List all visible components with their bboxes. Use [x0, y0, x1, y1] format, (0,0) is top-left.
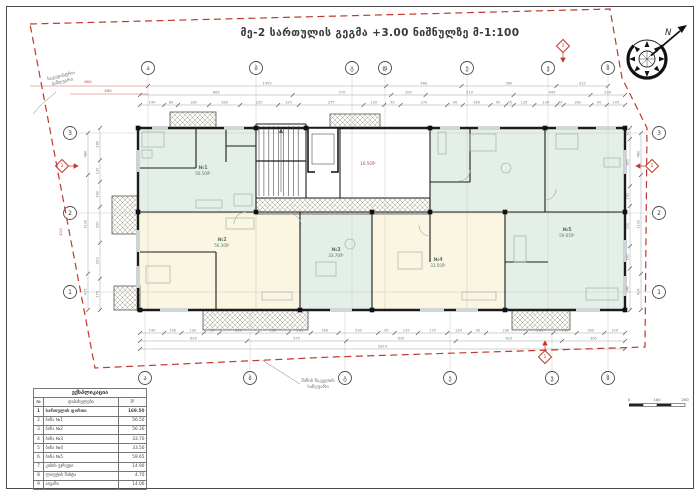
shaft-top-center	[330, 114, 380, 128]
dim-value: 90	[453, 101, 458, 105]
table-row: 1სართულის ფართი169.50	[34, 407, 147, 416]
balcony-left-upper	[112, 196, 138, 234]
column-marker	[136, 126, 141, 131]
grid-bubble-label: ა	[146, 65, 149, 72]
row-number: 7	[34, 462, 44, 471]
boundary-dim-value: 490	[104, 88, 112, 93]
row-area: 4.70	[119, 471, 147, 480]
dim-value: 130	[189, 329, 197, 333]
window-break	[136, 230, 140, 252]
table-row: 5ბინა №433.50	[34, 444, 147, 453]
dim-value: 120	[96, 167, 100, 175]
column-marker	[503, 308, 508, 313]
grid-bubble-label: ზ	[606, 65, 609, 72]
row-number: 5	[34, 444, 44, 453]
balcony-left-lower	[114, 286, 140, 310]
room-fill-apt3	[300, 212, 372, 310]
dim-value: 130	[296, 329, 304, 333]
grid-bubble-label: 3	[68, 130, 72, 137]
dim-value: 160	[321, 329, 329, 333]
dim-value: 45	[508, 101, 513, 105]
dim-value: 510	[466, 91, 474, 95]
dim-value: 120	[611, 329, 619, 333]
dim-value: 135	[403, 329, 410, 333]
section-arrow-head	[561, 58, 565, 62]
scale-seg-1	[629, 404, 643, 407]
grid-bubble-label: 1	[657, 289, 661, 296]
section-arrow-head	[74, 164, 78, 168]
boundary-dim-value: 410	[58, 228, 63, 236]
staircase	[256, 126, 306, 196]
grid-bubble-label: ზ	[606, 375, 609, 382]
window-break	[556, 126, 578, 130]
table-row: 9აივანი14.06	[34, 480, 147, 489]
dim-value: 1130	[637, 219, 641, 229]
dim-value: 180	[96, 140, 100, 148]
room-fill-apt1	[138, 128, 256, 212]
column-marker	[136, 210, 141, 215]
dim-value: 95	[390, 101, 395, 105]
drawing-sheet: აბგდევზაბგევზ321321 №156.50მ²№256.30მ²№3…	[0, 0, 700, 495]
row-number: 4	[34, 434, 44, 443]
row-name: ბინა №2	[44, 425, 119, 434]
column-marker	[503, 210, 508, 215]
row-name: ბინა №3	[44, 434, 119, 443]
balcony-bottom-right	[512, 310, 570, 330]
dim-value: 570	[339, 91, 347, 95]
window-break	[456, 308, 478, 312]
column-marker	[298, 308, 303, 313]
table-row: 2ბინა №156.50	[34, 416, 147, 425]
row-name: ბინა №1	[44, 416, 119, 425]
scale-seg-4	[671, 404, 685, 407]
window-break	[330, 308, 352, 312]
balcony-top-left	[170, 112, 216, 128]
scale-seg-2	[643, 404, 657, 407]
row-area: 14.90	[119, 462, 147, 471]
dim-value: 175	[96, 291, 100, 298]
table-title: ექსპლიკაცია	[34, 389, 147, 398]
dim-value: 200	[604, 91, 612, 95]
table-header-area: მ²	[119, 398, 147, 407]
section-marker: 2	[56, 160, 79, 173]
compass-tick	[659, 57, 665, 62]
dim-value: 160	[536, 329, 544, 333]
window-break	[160, 308, 188, 312]
row-name: კიბის უჯრედი	[44, 462, 119, 471]
dim-value: 460	[420, 82, 428, 86]
dim-value: 160	[626, 192, 630, 200]
table-row: 7კიბის უჯრედი14.90	[34, 462, 147, 471]
dim-value: 105	[613, 101, 620, 105]
dim-value: 180	[626, 253, 630, 261]
dim-value: 230	[502, 329, 510, 333]
column-marker	[304, 126, 309, 131]
dim-value: 160	[574, 101, 582, 105]
dim-value: 130	[542, 101, 550, 105]
dim-value: 415	[84, 288, 88, 295]
dim-value: 365	[590, 337, 597, 341]
dim-value: 170	[429, 329, 437, 333]
explication-block: ექსპლიკაცია № დასახელება მ² 1სართულის ფა…	[33, 388, 146, 490]
parcel-note-line2: საზღვარი	[283, 385, 353, 391]
compass-tick	[629, 57, 635, 62]
window-break	[576, 308, 600, 312]
room-area: 16.50მ²	[360, 161, 376, 166]
row-name: ბინა №5	[44, 453, 119, 462]
grid-bubble-label: 3	[657, 130, 661, 137]
dim-value: 180	[221, 101, 229, 105]
row-number: 1	[34, 407, 44, 416]
room-area: 33.70მ²	[328, 253, 344, 258]
drawing-title: მე-2 სართულის გეგმა +3.00 ნიშნულზე მ-1:1…	[60, 27, 700, 39]
row-number: 6	[34, 453, 44, 462]
section-number: 2	[651, 163, 654, 169]
elevator	[308, 128, 338, 174]
grid-bubble-label: 1	[68, 289, 72, 296]
dim-value: 1130	[84, 219, 88, 229]
row-area: 56.50	[119, 416, 147, 425]
dim-value: 90	[597, 101, 602, 105]
section-arrow-head	[543, 341, 547, 345]
column-marker	[428, 210, 433, 215]
room-fill-apt5-top	[430, 128, 625, 215]
column-marker	[370, 308, 375, 313]
dim-value: 1455	[263, 82, 272, 86]
window-break	[440, 126, 460, 130]
dim-value: 200	[96, 221, 100, 229]
room-area: 56.30მ²	[214, 243, 230, 248]
row-number: 3	[34, 425, 44, 434]
grid-bubble-label: 2	[68, 210, 72, 217]
row-area: 14.06	[119, 480, 147, 489]
dim-value: 575	[293, 337, 300, 341]
dim-value: 90	[496, 101, 501, 105]
balcony-bottom-left	[203, 310, 308, 330]
scale-bar: 0 100 200	[628, 397, 689, 407]
column-marker	[370, 210, 375, 215]
section-marker: 1	[539, 341, 552, 364]
dim-value: 80	[169, 101, 174, 105]
dim-value: 140	[96, 190, 100, 198]
scale-label-0: 0	[628, 397, 631, 402]
column-marker	[138, 308, 143, 313]
window-break	[152, 126, 168, 130]
row-number: 2	[34, 416, 44, 425]
dim-value: 620	[190, 337, 198, 341]
dim-value: 130	[455, 329, 463, 333]
dim-value: 2810	[378, 345, 388, 349]
row-name: სართულის ფართი	[44, 407, 119, 416]
dim-value: 315	[579, 82, 586, 86]
column-marker	[623, 126, 628, 131]
dim-value: 885	[213, 91, 220, 95]
row-area: 33.50	[119, 444, 147, 453]
parcel-boundary-note: მიწის ნაკვეთის საზღვარი	[283, 379, 353, 390]
table-row: 6ბინა №559.65	[34, 453, 147, 462]
table-row: 8ლიფტის შახტა4.70	[34, 471, 147, 480]
room-fill-apt2	[140, 212, 300, 310]
dim-value: 480	[84, 150, 88, 158]
room-area: 56.50მ²	[195, 171, 211, 176]
window-break	[224, 126, 244, 130]
column-marker	[428, 126, 433, 131]
scale-seg-3	[657, 404, 671, 407]
dim-value: 635	[398, 337, 405, 341]
grid-bubble-label: ბ	[248, 375, 251, 382]
dim-value: 220	[256, 101, 264, 105]
table-header-name: დასახელება	[44, 398, 119, 407]
dim-value: 100	[169, 329, 177, 333]
compass-tick	[645, 41, 650, 47]
dim-value: 120	[285, 101, 293, 105]
row-area: 56.30	[119, 425, 147, 434]
dim-value: 200	[405, 91, 413, 95]
window-break	[420, 308, 444, 312]
table-header-num: №	[34, 398, 44, 407]
row-area: 33.70	[119, 434, 147, 443]
window-break	[596, 126, 616, 130]
dim-value: 140	[149, 101, 157, 105]
dim-value: 230	[355, 329, 363, 333]
dim-value: 385	[626, 159, 630, 166]
room-area: 59.65მ²	[559, 233, 575, 238]
grid-bubble-label: ე	[448, 375, 451, 382]
grid-bubble-label: 2	[657, 210, 661, 217]
dim-value: 120	[521, 101, 529, 105]
compass-tick	[645, 71, 650, 77]
dim-value: 180	[269, 329, 277, 333]
room-fill-apt5-bottom	[505, 212, 625, 310]
elevator-door	[315, 170, 331, 174]
grid-bubble-label: ვ	[550, 375, 553, 382]
grid-bubble-label: გ	[350, 65, 354, 72]
grid-bubble-label: ა	[143, 375, 146, 382]
window-break	[136, 266, 140, 288]
dim-value: 580	[506, 82, 514, 86]
dim-value: 270	[420, 101, 428, 105]
scale-label-200: 200	[681, 397, 689, 402]
explication-table: ექსპლიკაცია № დასახელება მ² 1სართულის ფა…	[33, 388, 147, 490]
table-row: 4ბინა №333.70	[34, 434, 147, 443]
grid-bubble-label: ე	[465, 65, 468, 72]
dim-value: 180	[190, 101, 198, 105]
section-number: 1	[544, 354, 547, 360]
table-row: 3ბინა №256.30	[34, 425, 147, 434]
dim-value: 140	[149, 329, 157, 333]
dim-value: 220	[235, 329, 243, 333]
dim-value: 375	[328, 101, 335, 105]
column-marker	[254, 210, 259, 215]
row-number: 9	[34, 480, 44, 489]
column-marker	[254, 126, 259, 131]
scale-label-100: 100	[653, 397, 661, 402]
window-break	[136, 150, 140, 172]
grid-bubble-label: დ	[383, 65, 388, 72]
dim-value: 120	[370, 101, 378, 105]
row-name: ლიფტის შახტა	[44, 471, 119, 480]
leader-top-left	[33, 92, 56, 114]
section-marker: 1	[557, 40, 570, 63]
dim-value: 415	[637, 288, 641, 295]
row-area: 169.50	[119, 407, 147, 416]
elevator-shaft	[308, 128, 338, 172]
section-number: 2	[61, 163, 64, 169]
dim-value: 90	[626, 131, 630, 136]
dim-value: 200	[96, 257, 100, 265]
dim-value: 480	[637, 150, 641, 158]
grid-bubble-label: ვ	[546, 65, 549, 72]
dim-value: 340	[626, 285, 630, 293]
dim-value: 95	[476, 329, 481, 333]
row-name: აივანი	[44, 480, 119, 489]
dim-value: 90	[209, 329, 214, 333]
window-break	[478, 126, 500, 130]
section-arrow-head	[636, 164, 640, 168]
dim-value: 135	[562, 329, 569, 333]
row-name: ბინა №4	[44, 444, 119, 453]
column-marker	[623, 210, 628, 215]
column-marker	[623, 308, 628, 313]
dim-value: 160	[473, 101, 481, 105]
section-number: 1	[562, 43, 565, 49]
room-fills	[138, 128, 625, 310]
row-area: 59.65	[119, 453, 147, 462]
grid-bubble-label: ბ	[254, 65, 257, 72]
dim-value: 445	[549, 91, 556, 95]
row-number: 8	[34, 471, 44, 480]
dim-value: 95	[384, 329, 389, 333]
dim-value: 40	[558, 101, 563, 105]
column-marker	[543, 126, 548, 131]
room-area: 33.50მ²	[430, 263, 446, 268]
dim-value: 615	[505, 337, 512, 341]
dim-value: 330	[626, 222, 630, 230]
dim-value: 160	[587, 329, 595, 333]
